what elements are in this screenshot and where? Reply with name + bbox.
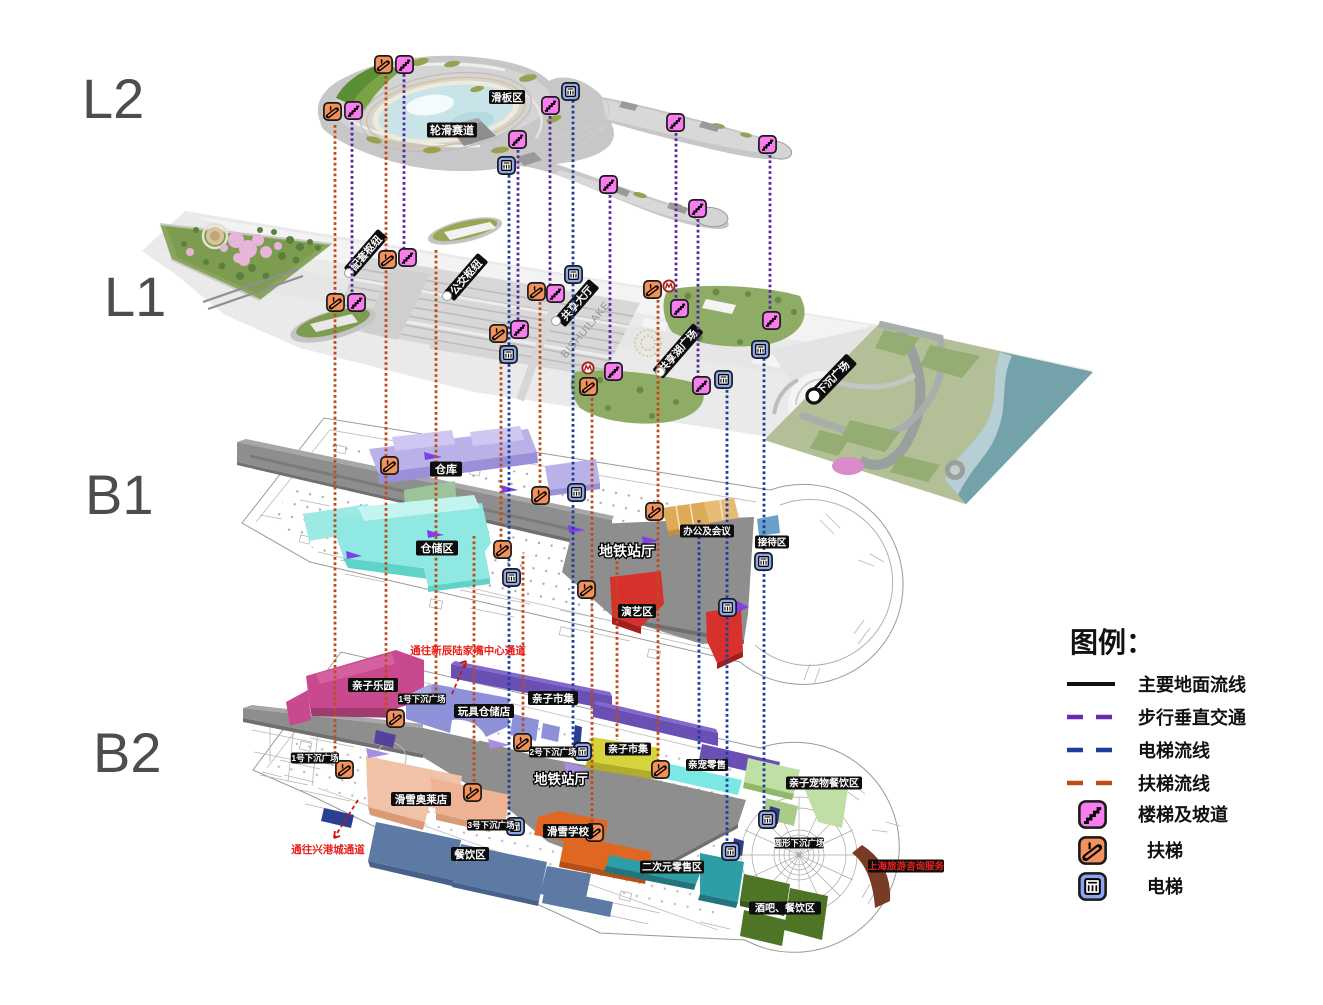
svg-text:滑雪奥莱店: 滑雪奥莱店	[395, 793, 448, 806]
svg-text:亲子乐园: 亲子乐园	[352, 679, 394, 692]
svg-text:图例：: 图例：	[1070, 627, 1154, 658]
svg-text:地铁站厅: 地铁站厅	[599, 543, 655, 559]
svg-text:办公及会议: 办公及会议	[683, 526, 731, 538]
svg-text:扶梯流线: 扶梯流线	[1138, 773, 1210, 794]
svg-text:滑雪学校: 滑雪学校	[547, 825, 589, 838]
svg-text:电梯流线: 电梯流线	[1138, 740, 1210, 761]
svg-text:电梯: 电梯	[1147, 876, 1183, 897]
svg-text:亲宠零售: 亲宠零售	[688, 759, 726, 771]
svg-text:主要地面流线: 主要地面流线	[1138, 674, 1246, 695]
svg-text:仓库: 仓库	[434, 462, 457, 476]
svg-text:圆形下沉广场: 圆形下沉广场	[773, 838, 825, 848]
svg-text:步行垂直交通: 步行垂直交通	[1138, 707, 1246, 728]
svg-text:B2: B2	[93, 721, 162, 784]
svg-text:B1: B1	[85, 463, 154, 526]
svg-text:轮滑赛道: 轮滑赛道	[430, 123, 474, 137]
svg-text:亲子宠物餐饮区: 亲子宠物餐饮区	[789, 777, 859, 790]
svg-text:上海旅游咨询服务: 上海旅游咨询服务	[868, 861, 945, 873]
svg-text:3号下沉广场: 3号下沉广场	[467, 820, 515, 830]
svg-text:接待区: 接待区	[758, 537, 787, 549]
svg-text:演艺区: 演艺区	[621, 605, 653, 618]
svg-text:1号下沉广场: 1号下沉广场	[398, 694, 446, 704]
svg-text:通往兴港城通道: 通往兴港城通道	[291, 843, 365, 856]
svg-text:L1: L1	[104, 265, 166, 328]
svg-text:玩具仓储店: 玩具仓储店	[458, 705, 511, 718]
svg-text:2号下沉广场: 2号下沉广场	[529, 747, 577, 757]
svg-text:酒吧、餐饮区: 酒吧、餐饮区	[755, 902, 815, 915]
svg-text:地铁站厅: 地铁站厅	[534, 771, 588, 787]
svg-text:滑板区: 滑板区	[491, 91, 523, 104]
svg-text:亲子市集: 亲子市集	[532, 692, 574, 705]
svg-text:仓储区: 仓储区	[420, 541, 454, 555]
svg-text:1号下沉广场: 1号下沉广场	[291, 753, 339, 763]
svg-text:餐饮区: 餐饮区	[453, 848, 486, 861]
svg-text:L2: L2	[82, 67, 144, 130]
svg-text:扶梯: 扶梯	[1147, 840, 1183, 861]
svg-text:通往新辰陆家嘴中心通道: 通往新辰陆家嘴中心通道	[410, 644, 526, 657]
svg-text:楼梯及坡道: 楼梯及坡道	[1138, 804, 1228, 825]
svg-text:亲子市集: 亲子市集	[608, 743, 649, 756]
svg-text:二次元零售区: 二次元零售区	[642, 861, 702, 874]
